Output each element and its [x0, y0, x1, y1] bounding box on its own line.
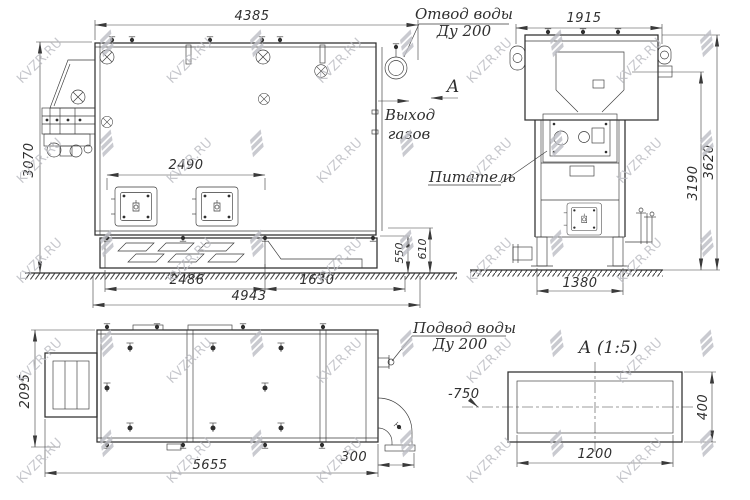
- blueprint-canvas: KVZR.RU: [0, 0, 750, 500]
- boiler-drawing: KVZR.RU: [0, 0, 750, 500]
- watermark-layer: [0, 0, 750, 500]
